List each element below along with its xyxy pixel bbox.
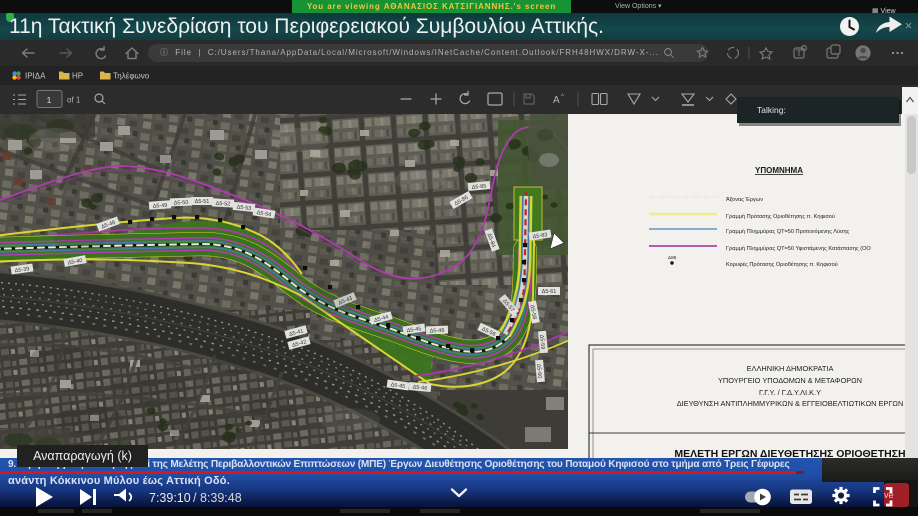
svg-text:ΕΛΛΗΝΙΚΗ ΔΗΜΟΚΡΑΤΙΑ: ΕΛΛΗΝΙΚΗ ΔΗΜΟΚΡΑΤΙΑ	[747, 364, 834, 373]
svg-text:A: A	[553, 95, 560, 106]
svg-text:Γραμμή Πρότασης Οριοθέτησης π.: Γραμμή Πρότασης Οριοθέτησης π. Κηφισού	[726, 213, 835, 220]
svg-text:Δ88: Δ88	[668, 255, 677, 260]
svg-text:Γ.Γ.Υ. / Γ.Δ.Υ.ΛΙ.Κ.Υ: Γ.Γ.Υ. / Γ.Δ.Υ.ΛΙ.Κ.Υ	[759, 388, 821, 397]
svg-text:Τηλέφωνο: Τηλέφωνο	[113, 72, 150, 81]
svg-text:/ 8:39:48: / 8:39:48	[193, 491, 242, 505]
svg-text:ΙΡΙΔΑ: ΙΡΙΔΑ	[25, 72, 46, 81]
svg-text:ΥΠΟΥΡΓΕΙΟ ΥΠΟΔΟΜΩΝ & ΜΕΤΑΦΟΡΩΝ: ΥΠΟΥΡΓΕΙΟ ΥΠΟΔΟΜΩΝ & ΜΕΤΑΦΟΡΩΝ	[718, 376, 862, 385]
svg-text:of 1: of 1	[67, 96, 81, 105]
svg-text:HP: HP	[72, 72, 83, 81]
svg-text:Γραμμή Πλημμύρας QT=50 Υφιστάμ: Γραμμή Πλημμύρας QT=50 Υφιστάμενης Κατάσ…	[726, 245, 871, 252]
svg-text:ΜΕΛΕΤΗ ΕΡΓΩΝ ΔΙΕΥΘΕΤΗΣΗΣ ΟΡΙΟΘ: ΜΕΛΕΤΗ ΕΡΓΩΝ ΔΙΕΥΘΕΤΗΣΗΣ ΟΡΙΟΘΕΤΗΣΗ	[674, 448, 905, 458]
svg-text:^: ^	[561, 94, 564, 100]
svg-text:1: 1	[47, 95, 52, 105]
svg-text:Γραμμή Πλημμύρας QT=50 Προτειν: Γραμμή Πλημμύρας QT=50 Προτεινόμενης Λύσ…	[726, 228, 850, 235]
svg-text:7:39:10: 7:39:10	[149, 491, 191, 505]
svg-text:ΥΠΟΜΝΗΜΑ: ΥΠΟΜΝΗΜΑ	[755, 166, 803, 175]
svg-text:Άξονας Έργων: Άξονας Έργων	[726, 197, 763, 203]
svg-text:ΔΙΕΥΘΥΝΣΗ ΑΝΤΙΠΛΗΜΜΥΡΙΚΩΝ & ΕΓ: ΔΙΕΥΘΥΝΣΗ ΑΝΤΙΠΛΗΜΜΥΡΙΚΩΝ & ΕΓΓΕΙΟΒΕΛΤΙΩ…	[677, 399, 904, 408]
svg-text:Κορυφές Πρότασης Οριοθέτησης π: Κορυφές Πρότασης Οριοθέτησης π. Κηφισού	[726, 261, 838, 268]
